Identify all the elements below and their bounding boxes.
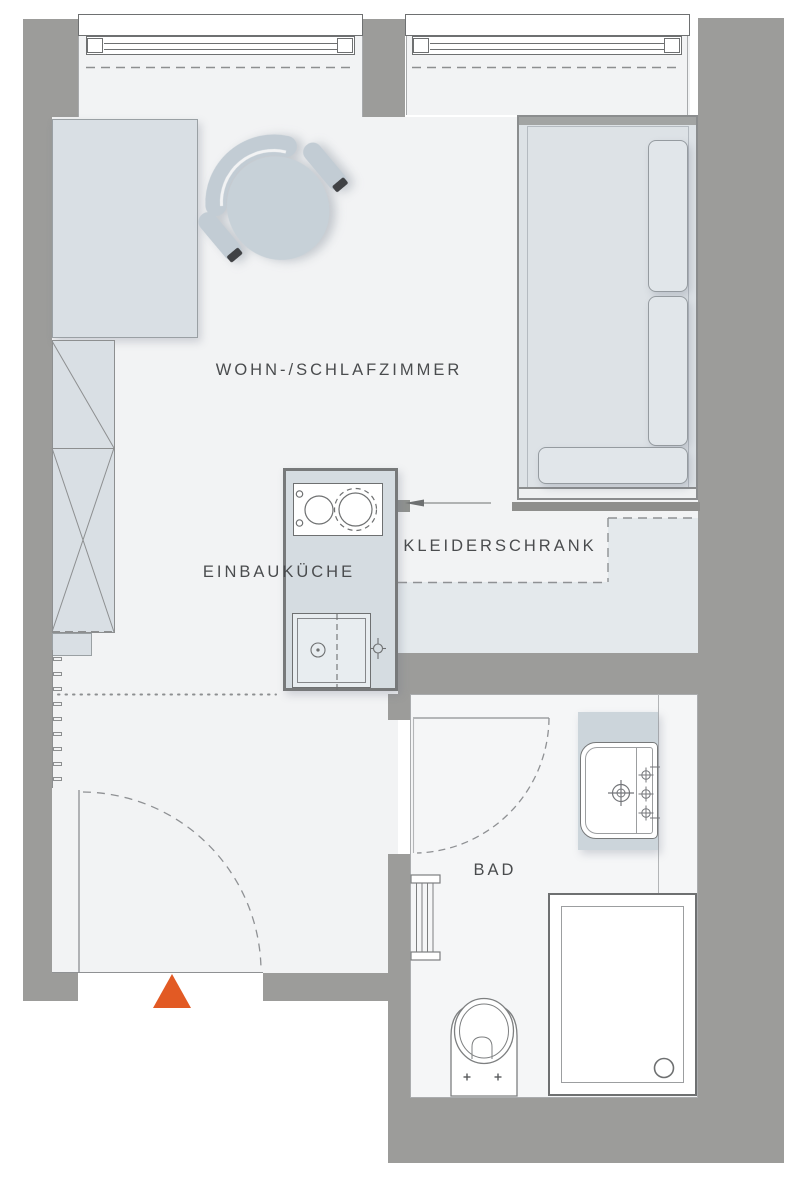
room-label-wardrobe: KLEIDERSCHRANK: [403, 537, 596, 556]
linework-overlay: [0, 0, 810, 1192]
cabinet-diagonals: [52, 341, 114, 632]
window-glazing: [104, 44, 664, 50]
kitchen-leader-arrow: [405, 500, 491, 507]
room-label-living-bedroom: WOHN-/SCHLAFZIMMER: [216, 361, 463, 380]
cooktop-burners: [296, 489, 376, 531]
kitchen-sink-symbols: [311, 614, 386, 692]
entrance-door-swing: [79, 790, 261, 972]
armchair: [181, 112, 367, 295]
room-label-bathroom: BAD: [474, 861, 517, 880]
washbasin-faucet-symbols: [608, 767, 660, 821]
toilet: [451, 999, 517, 1097]
floor-plan: WOHN-/SCHLAFZIMMER EINBAUKÜCHE KLEIDERSC…: [0, 0, 810, 1192]
towel-radiator: [411, 875, 440, 960]
shower-drain: [655, 1059, 674, 1078]
room-label-kitchen: EINBAUKÜCHE: [203, 563, 355, 582]
bathroom-door-swing: [413, 718, 549, 853]
entrance-marker: [153, 974, 191, 1008]
